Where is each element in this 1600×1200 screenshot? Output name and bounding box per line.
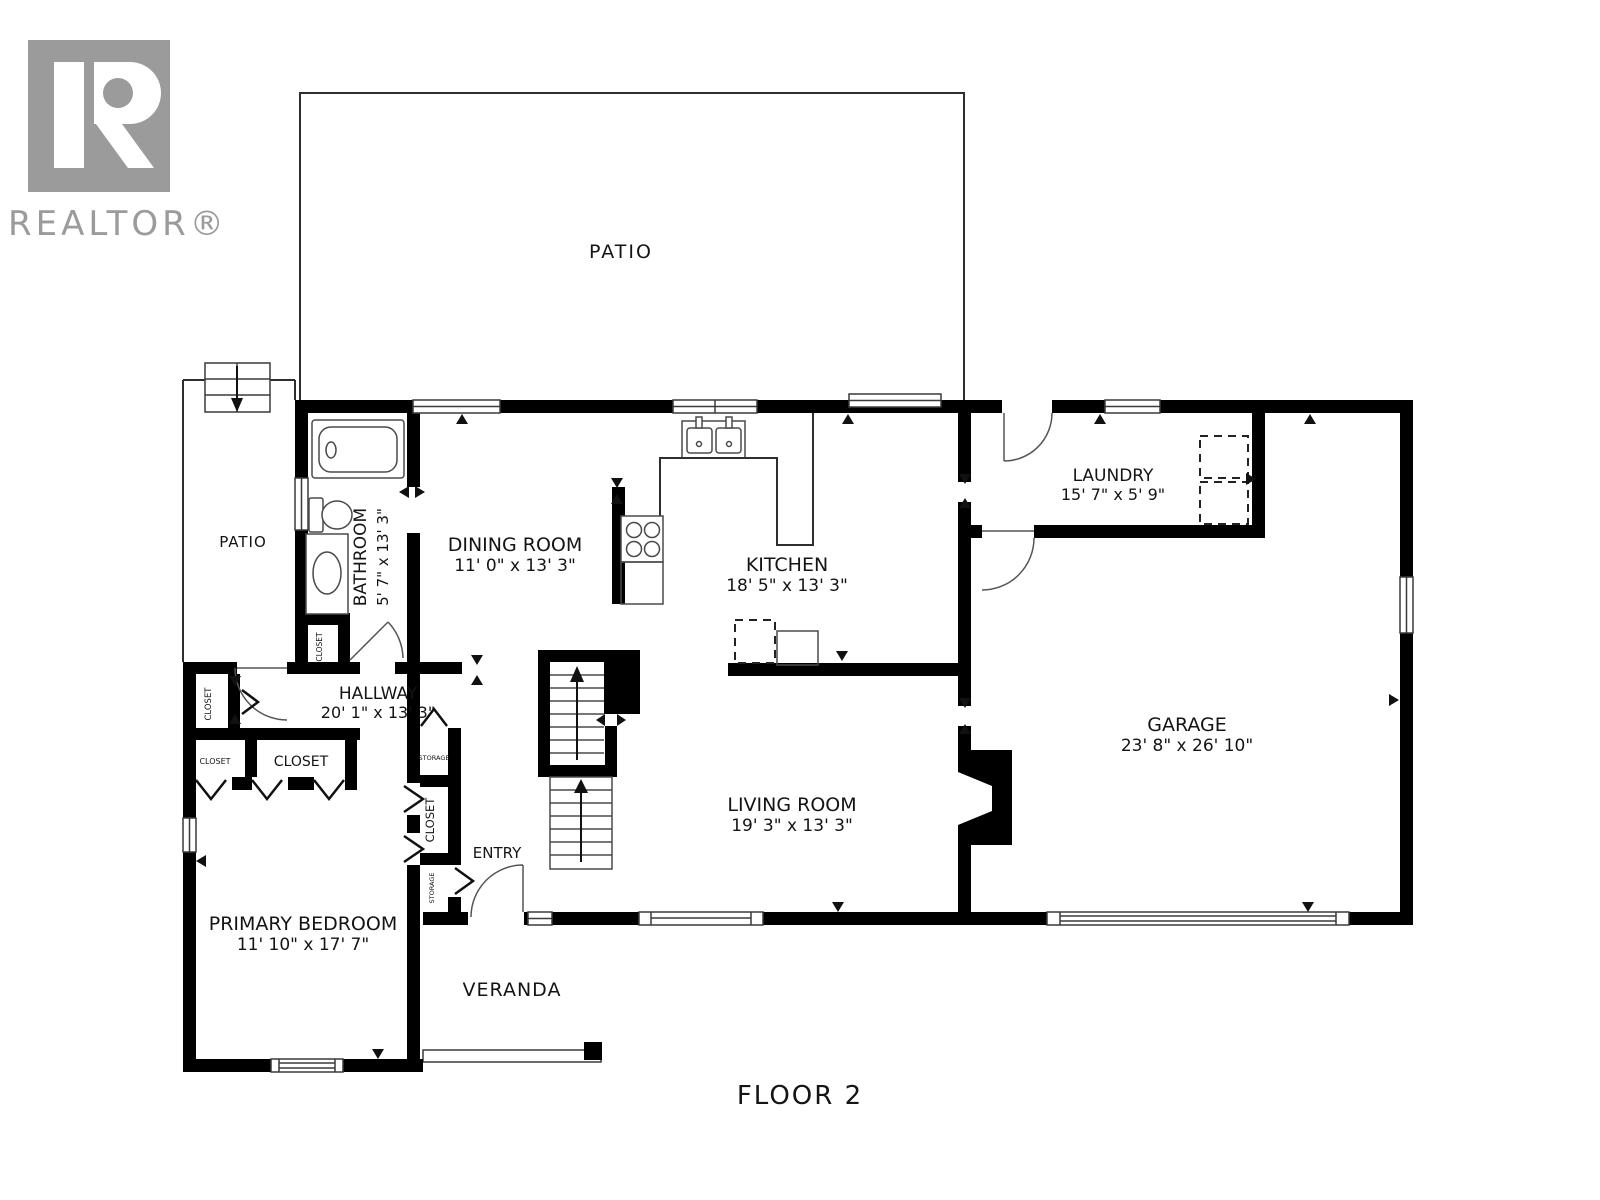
floor-plan: PATIO PATIO BATHROOM 5' 7" x 13' 3" DINI… bbox=[0, 0, 1600, 1200]
closet-hall-wide-label: CLOSET bbox=[274, 754, 329, 770]
dining-room-dims: 11' 0" x 13' 3" bbox=[454, 556, 576, 576]
bedroom-bottom-window bbox=[271, 1059, 343, 1072]
stairs-chimney-mass bbox=[604, 650, 640, 714]
hallway-label: HALLWAY bbox=[339, 684, 418, 704]
closet-column-label: CLOSET bbox=[423, 797, 437, 843]
garage-label: GARAGE bbox=[1147, 714, 1227, 736]
kitchen-label: KITCHEN bbox=[746, 554, 828, 576]
garage-right-window bbox=[1400, 577, 1413, 633]
patio-side-outline bbox=[183, 363, 295, 662]
garage-dims: 23' 8" x 26' 10" bbox=[1121, 736, 1253, 756]
living-room-dims: 19' 3" x 13' 3" bbox=[731, 816, 853, 836]
primary-bedroom-label: PRIMARY BEDROOM bbox=[209, 913, 397, 935]
laundry-window bbox=[1105, 400, 1160, 413]
stove bbox=[621, 516, 663, 562]
kitchen-island bbox=[777, 631, 818, 665]
primary-bedroom-dims: 11' 10" x 17' 7" bbox=[237, 935, 369, 955]
dining-room-label: DINING ROOM bbox=[448, 534, 583, 556]
closet-bathroom-label: CLOSET bbox=[315, 632, 324, 662]
bathtub bbox=[312, 420, 404, 478]
garage-door bbox=[1047, 912, 1349, 925]
laundry-fixtures bbox=[1200, 436, 1256, 524]
veranda-post bbox=[584, 1042, 602, 1060]
patio-side-label: PATIO bbox=[219, 533, 267, 551]
entry-small-window bbox=[528, 912, 552, 925]
laundry-dims: 15' 7" x 5' 9" bbox=[1061, 485, 1165, 504]
living-bottom-window bbox=[639, 912, 763, 925]
floor-plan-page: PATIO PATIO BATHROOM 5' 7" x 13' 3" DINI… bbox=[0, 0, 1600, 1200]
kitchen-fixtures bbox=[621, 413, 818, 665]
toilet bbox=[309, 498, 352, 532]
fireplace bbox=[958, 750, 1012, 845]
entry-label: ENTRY bbox=[473, 844, 522, 862]
realtor-logo-text: REALTOR® bbox=[8, 204, 228, 244]
patio-offset-window bbox=[849, 394, 941, 407]
entry-door bbox=[471, 865, 523, 917]
hallway-dims: 20' 1" x 13' 3" bbox=[321, 703, 435, 722]
veranda-outline bbox=[423, 1042, 602, 1062]
washer bbox=[1200, 436, 1248, 478]
windows bbox=[183, 394, 1413, 1072]
laundry-entry-door bbox=[1004, 413, 1052, 461]
laundry-label: LAUNDRY bbox=[1073, 466, 1154, 486]
bathroom-dims: 5' 7" x 13' 3" bbox=[374, 508, 392, 606]
bathroom-patio-window bbox=[295, 478, 308, 530]
storage-lower-label: STORAGE bbox=[428, 873, 436, 904]
dryer bbox=[1200, 482, 1248, 524]
patio-stairs bbox=[205, 363, 270, 412]
patio-top-label: PATIO bbox=[589, 241, 653, 263]
kitchen-island-dashed bbox=[735, 620, 775, 663]
kitchen-sink bbox=[682, 417, 745, 458]
living-room-label: LIVING ROOM bbox=[727, 794, 856, 816]
storage-upper-label: STORAGE bbox=[419, 754, 450, 762]
kitchen-dims: 18' 5" x 13' 3" bbox=[726, 576, 848, 596]
realtor-logo bbox=[28, 40, 170, 192]
floor-title: FLOOR 2 bbox=[737, 1081, 863, 1111]
laundry-garage-door bbox=[982, 531, 1034, 590]
veranda-label: VERANDA bbox=[463, 979, 562, 1001]
dining-window bbox=[413, 400, 500, 413]
bathroom-vanity bbox=[306, 534, 348, 614]
bath-closet-door bbox=[350, 622, 403, 660]
kitchen-window bbox=[673, 400, 757, 413]
closet-hall-small-label: CLOSET bbox=[199, 757, 230, 766]
bathroom-label: BATHROOM bbox=[351, 508, 371, 606]
bedroom-left-window bbox=[183, 818, 196, 852]
closet-hall-upper-label: CLOSET bbox=[204, 687, 214, 721]
kitchen-cabinet bbox=[621, 562, 663, 604]
